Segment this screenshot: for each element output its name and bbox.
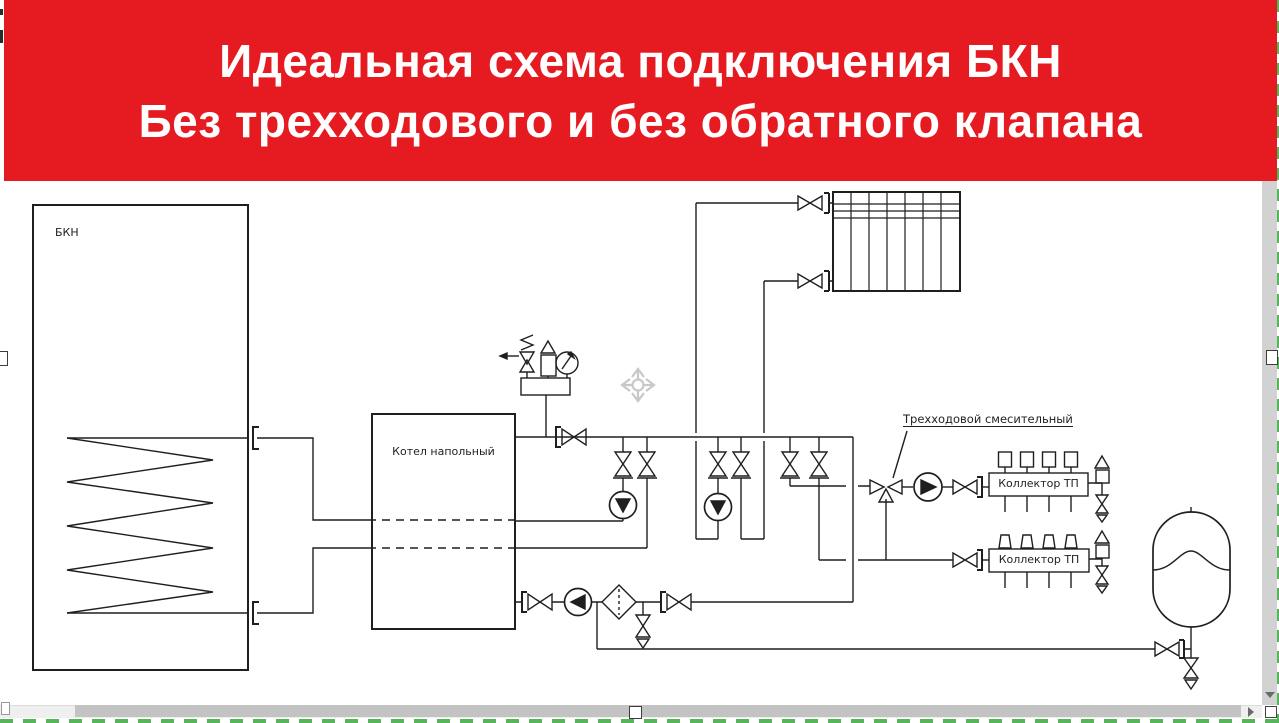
valve-icon — [613, 437, 633, 478]
vertical-scrollbar[interactable] — [1262, 181, 1277, 705]
collector-top-label: Коллектор ТП — [989, 478, 1088, 490]
move-cursor-icon — [622, 369, 654, 401]
pump-icon — [610, 478, 637, 521]
indirect-tank — [33, 205, 368, 670]
selection-handle-bottom[interactable] — [629, 706, 642, 719]
boiler-label: Котел напольный — [372, 446, 515, 458]
spring-icon — [521, 335, 533, 350]
radiator-icon — [833, 192, 960, 291]
selection-border-bottom — [0, 719, 1279, 723]
pipes — [515, 203, 1191, 649]
safety-group-icon — [500, 335, 578, 437]
banner-title-line2: Без трехходового и без обратного клапана — [139, 91, 1143, 151]
valve-icon — [809, 437, 829, 478]
selection-handle-left[interactable] — [0, 351, 8, 366]
air-vent-icon — [541, 355, 556, 376]
valve-icon — [708, 437, 728, 478]
page-nav-button[interactable] — [1, 702, 10, 715]
valve-icon — [953, 550, 989, 570]
tank-label: БКН — [55, 227, 79, 239]
edge-mark — [0, 9, 3, 15]
three-way-valve-icon — [870, 431, 913, 502]
circuit-valves — [613, 437, 829, 478]
horizontal-scrollbar-thumb[interactable] — [75, 705, 1241, 717]
selection-handle-right[interactable] — [1266, 350, 1278, 365]
return-line-equipment — [522, 585, 691, 648]
collector-bottom-label: Коллектор ТП — [989, 554, 1089, 566]
scroll-down-icon[interactable] — [1265, 692, 1275, 698]
title-banner: Идеальная схема подключения БКН Без трех… — [4, 0, 1277, 181]
scroll-right-icon[interactable] — [1248, 707, 1254, 717]
flange-icon — [253, 427, 259, 624]
expansion-tank-icon — [1153, 507, 1230, 689]
drain-valve-icon — [1185, 680, 1197, 689]
valve-icon — [780, 437, 800, 478]
pump-icon — [705, 478, 732, 539]
valve-icon — [953, 477, 989, 497]
drain-valve-icon — [1097, 586, 1107, 593]
scrollbar-corner — [1265, 706, 1277, 718]
pump-icon — [914, 473, 953, 501]
drain-valve-icon — [1097, 515, 1107, 522]
edge-mark — [0, 30, 3, 43]
valve-icon — [731, 437, 751, 478]
radiator-valves — [798, 193, 829, 291]
air-vent-icon — [1095, 531, 1109, 543]
banner-title-line1: Идеальная схема подключения БКН — [219, 31, 1062, 91]
relief-arrow-icon — [500, 353, 507, 359]
valve-icon — [637, 437, 657, 478]
three-way-label: Трехходовой смесительный — [903, 413, 1073, 427]
air-vent-icon — [1095, 456, 1109, 468]
app-window: БКН Котел напольный Трехходовой смесител… — [0, 0, 1279, 723]
